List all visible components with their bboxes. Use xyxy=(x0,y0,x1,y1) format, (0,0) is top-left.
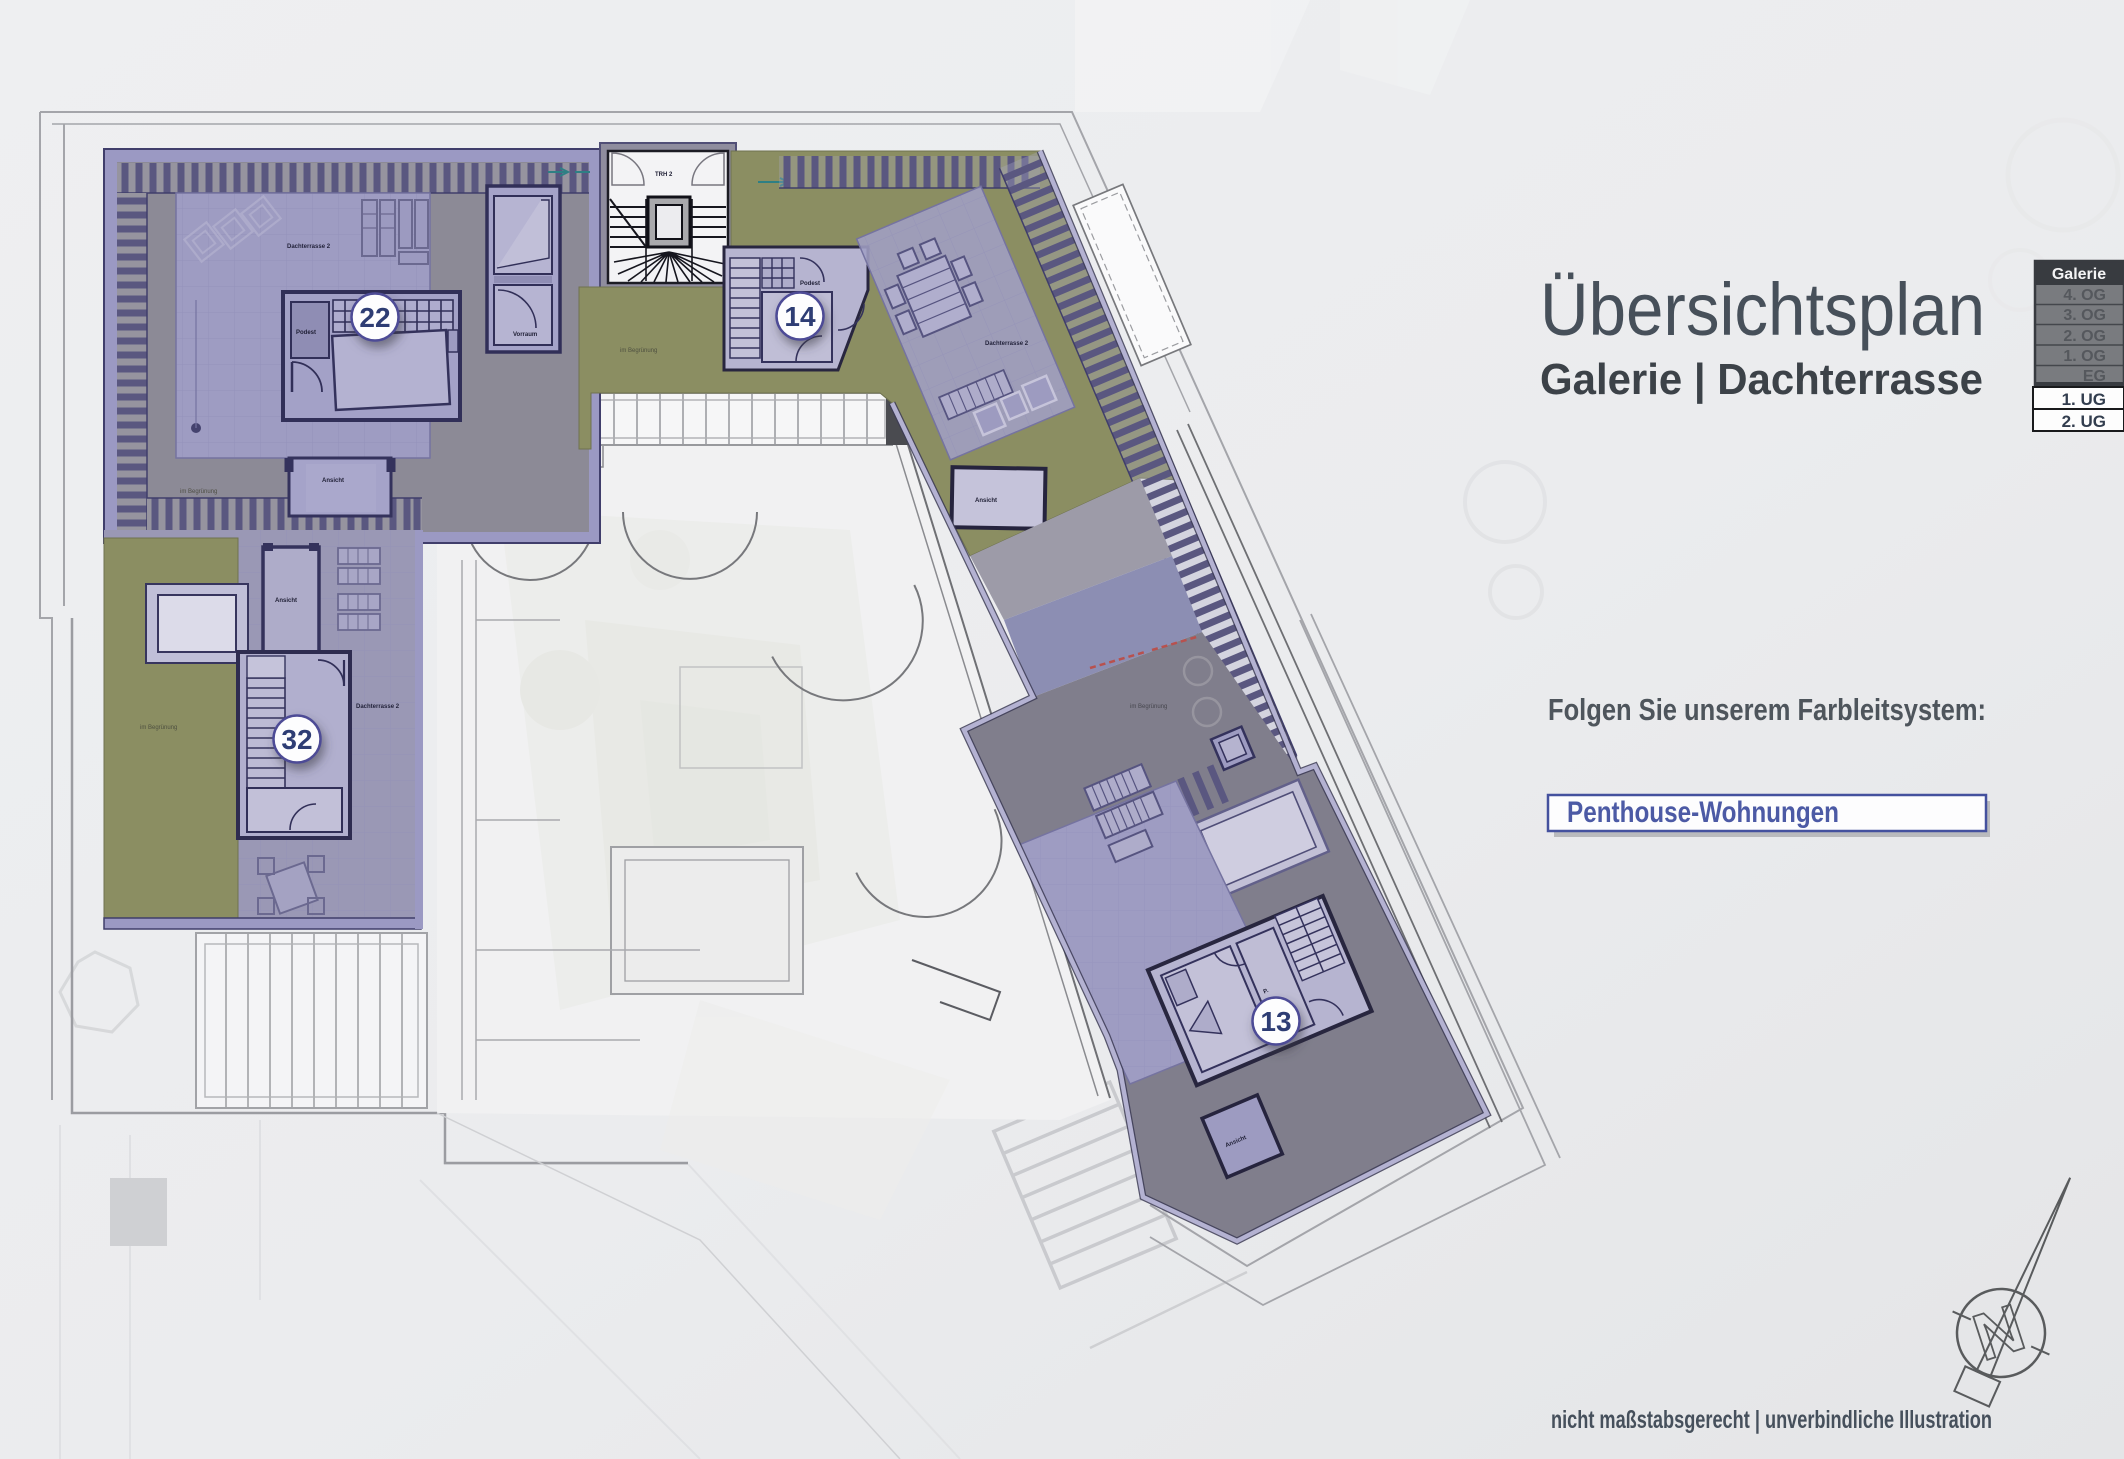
svg-text:32: 32 xyxy=(281,724,312,755)
svg-text:3. OG: 3. OG xyxy=(2063,307,2106,324)
svg-text:14: 14 xyxy=(784,301,816,332)
svg-text:TRH 2: TRH 2 xyxy=(655,172,673,178)
svg-text:1. UG: 1. UG xyxy=(2062,390,2106,409)
svg-text:Ansicht: Ansicht xyxy=(275,598,297,604)
svg-text:im Begrünung: im Begrünung xyxy=(140,725,177,731)
svg-text:Übersichtsplan: Übersichtsplan xyxy=(1540,268,1985,351)
svg-text:Dachterrasse 2: Dachterrasse 2 xyxy=(356,704,400,710)
svg-text:Galerie: Galerie xyxy=(2052,266,2106,283)
svg-text:Penthouse-Wohnungen: Penthouse-Wohnungen xyxy=(1567,796,1839,829)
svg-text:1. OG: 1. OG xyxy=(2063,348,2106,365)
svg-text:im Begrünung: im Begrünung xyxy=(620,348,657,354)
svg-text:22: 22 xyxy=(359,302,390,333)
svg-text:Dachterrasse 2: Dachterrasse 2 xyxy=(287,244,331,250)
svg-text:13: 13 xyxy=(1260,1006,1291,1037)
svg-text:2. OG: 2. OG xyxy=(2063,328,2106,345)
svg-text:Ansicht: Ansicht xyxy=(975,498,997,504)
svg-text:nicht maßstabsgerecht | unverb: nicht maßstabsgerecht | unverbindliche I… xyxy=(1551,1406,1992,1434)
svg-text:Dachterrasse 2: Dachterrasse 2 xyxy=(985,341,1029,347)
svg-text:Galerie | Dachterrasse: Galerie | Dachterrasse xyxy=(1540,355,1983,405)
svg-text:4. OG: 4. OG xyxy=(2063,287,2106,304)
svg-text:im Begrünung: im Begrünung xyxy=(180,489,217,495)
svg-text:Podest: Podest xyxy=(296,330,316,336)
svg-text:Vorraum: Vorraum xyxy=(513,332,537,338)
svg-text:Ansicht: Ansicht xyxy=(322,478,344,484)
svg-text:Folgen Sie unserem Farbleitsys: Folgen Sie unserem Farbleitsystem: xyxy=(1548,692,1986,727)
svg-text:2. UG: 2. UG xyxy=(2062,412,2106,431)
svg-text:im Begrünung: im Begrünung xyxy=(1130,704,1167,710)
svg-text:Podest: Podest xyxy=(800,281,820,287)
